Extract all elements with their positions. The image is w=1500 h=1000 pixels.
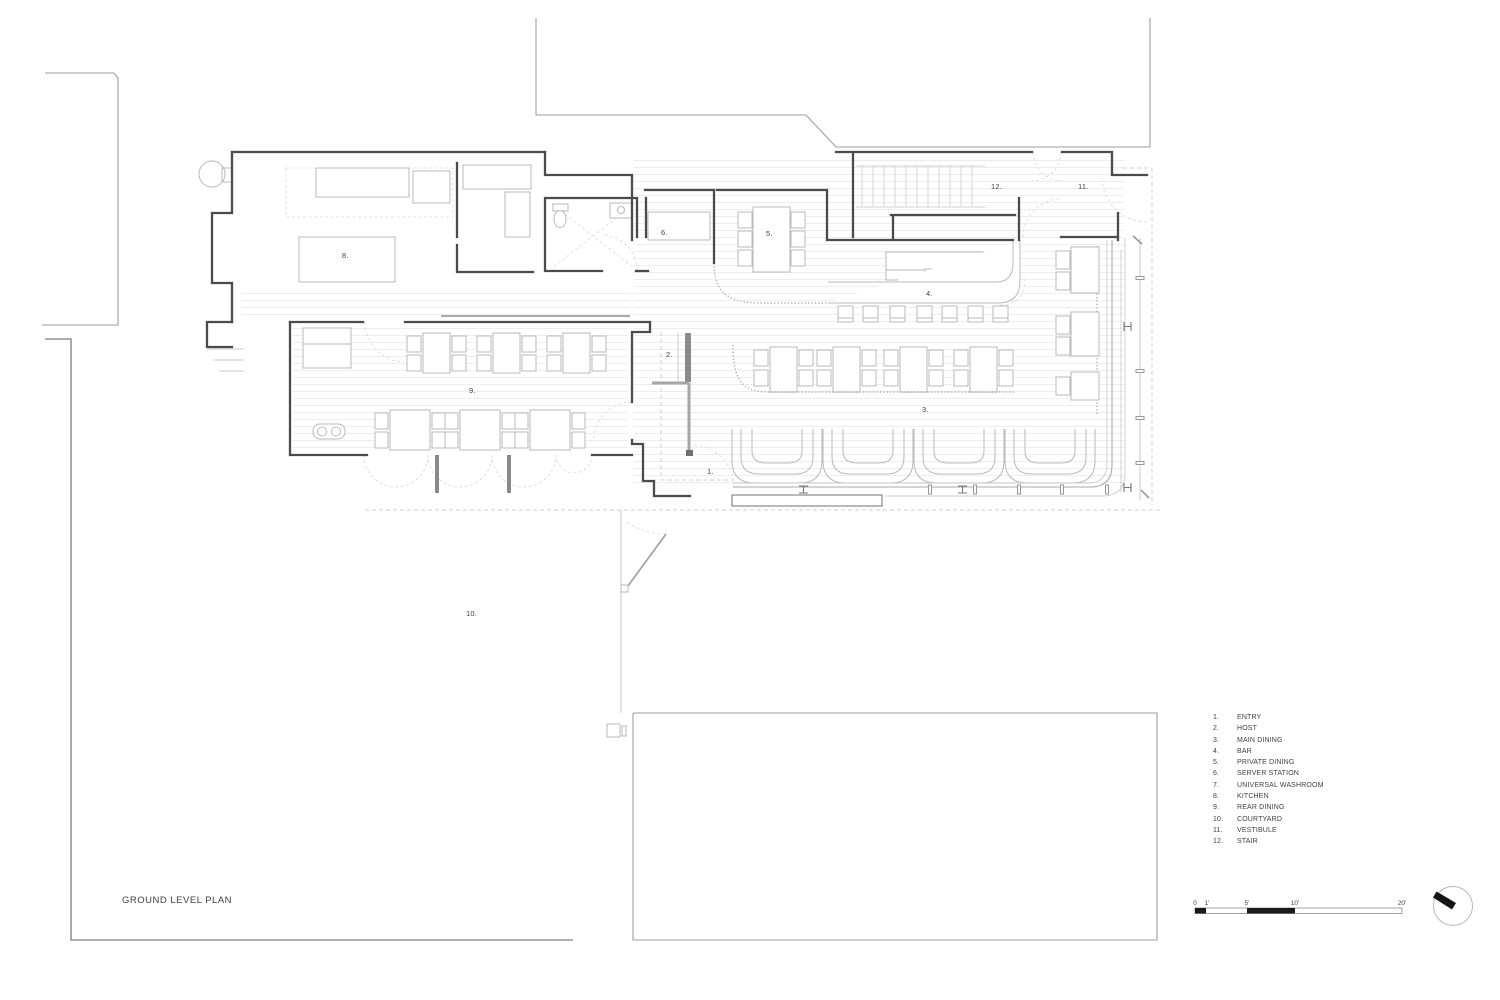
scale-tick-label: 20'	[1398, 900, 1406, 907]
washroom-fixtures	[553, 203, 632, 228]
folding-door-post	[435, 455, 439, 493]
room-label-kitchen: 8.	[342, 251, 349, 260]
legend-item-label: COURTYARD	[1237, 814, 1403, 825]
legend-item-label: HOST	[1237, 723, 1403, 734]
drawing-sheet: 1.2.3.4.5.6.8.9.10.11.12. 01'5'10'20' GR…	[0, 0, 1500, 1000]
room-label-private-dining: 5.	[766, 229, 773, 238]
bar-stools	[838, 306, 1008, 322]
legend-item: 2.HOST	[1213, 723, 1403, 734]
room-label-stair: 12.	[991, 182, 1002, 191]
room-legend: 1.ENTRY2.HOST3.MAIN DINING4.BAR5.PRIVATE…	[1213, 712, 1403, 848]
legend-item-label: REAR DINING	[1237, 802, 1403, 813]
north-arrow-icon	[1433, 887, 1473, 926]
kitchen-equipment	[199, 161, 531, 282]
legend-item-label: MAIN DINING	[1237, 735, 1403, 746]
room-label-vestibule: 11.	[1078, 182, 1088, 191]
legend-item-number: 7.	[1213, 780, 1237, 791]
room-label-courtyard: 10.	[466, 609, 477, 618]
server-counter	[648, 212, 710, 240]
floor-plan-drawing: 1.2.3.4.5.6.8.9.10.11.12. 01'5'10'20'	[0, 0, 1500, 1000]
courtyard-gate-leaf	[625, 534, 666, 590]
room-label-main-dining: 3.	[922, 405, 929, 414]
legend-item: 10.COURTYARD	[1213, 814, 1403, 825]
gate-post	[621, 585, 628, 592]
legend-item: 9.REAR DINING	[1213, 802, 1403, 813]
sheet-title: GROUND LEVEL PLAN	[122, 895, 232, 906]
main-dining-tables	[754, 347, 1013, 392]
legend-item-number: 1.	[1213, 712, 1237, 723]
legend-item-label: SERVER STATION	[1237, 768, 1403, 779]
private-dining-table	[738, 207, 805, 272]
legend-item: 5.PRIVATE DINING	[1213, 757, 1403, 768]
legend-item-label: UNIVERSAL WASHROOM	[1237, 780, 1403, 791]
scale-bar: 01'5'10'20'	[1193, 900, 1406, 914]
room-label-server-station: 6.	[661, 228, 668, 237]
legend-item-number: 4.	[1213, 746, 1237, 757]
legend-item-number: 8.	[1213, 791, 1237, 802]
scale-tick-label: 10'	[1291, 900, 1299, 907]
scale-tick-label: 0	[1193, 900, 1197, 907]
scale-tick-labels: 01'5'10'20'	[1193, 900, 1406, 907]
floor-hatch	[242, 157, 1124, 487]
legend-item-label: BAR	[1237, 746, 1403, 757]
legend-item: 3.MAIN DINING	[1213, 735, 1403, 746]
room-label-rear-dining: 9.	[469, 386, 476, 395]
legend-item-label: KITCHEN	[1237, 791, 1403, 802]
legend-item-number: 11.	[1213, 825, 1237, 836]
room-label-bar: 4.	[926, 289, 933, 298]
legend-item: 6.SERVER STATION	[1213, 768, 1403, 779]
legend-item-label: PRIVATE DINING	[1237, 757, 1403, 768]
scale-tick-label: 5'	[1245, 900, 1250, 907]
legend-item-number: 9.	[1213, 802, 1237, 813]
legend-item: 4.BAR	[1213, 746, 1403, 757]
legend-item: 1.ENTRY	[1213, 712, 1403, 723]
legend-item: 11.VESTIBULE	[1213, 825, 1403, 836]
legend-item-number: 6.	[1213, 768, 1237, 779]
legend-item-number: 10.	[1213, 814, 1237, 825]
scale-tick-label: 1'	[1205, 900, 1210, 907]
folding-door-post	[507, 455, 511, 493]
legend-item-number: 3.	[1213, 735, 1237, 746]
room-label-host: 2.	[666, 350, 673, 359]
legend-item-label: ENTRY	[1237, 712, 1403, 723]
legend-item: 7.UNIVERSAL WASHROOM	[1213, 780, 1403, 791]
legend-item-number: 5.	[1213, 757, 1237, 768]
room-label-entry: 1.	[707, 467, 714, 476]
legend-item-number: 12.	[1213, 836, 1237, 847]
legend-item-label: STAIR	[1237, 836, 1403, 847]
exterior-bench	[732, 495, 882, 506]
legend-item: 12.STAIR	[1213, 836, 1403, 847]
legend-item: 8.KITCHEN	[1213, 791, 1403, 802]
legend-item-number: 2.	[1213, 723, 1237, 734]
legend-item-label: VESTIBULE	[1237, 825, 1403, 836]
